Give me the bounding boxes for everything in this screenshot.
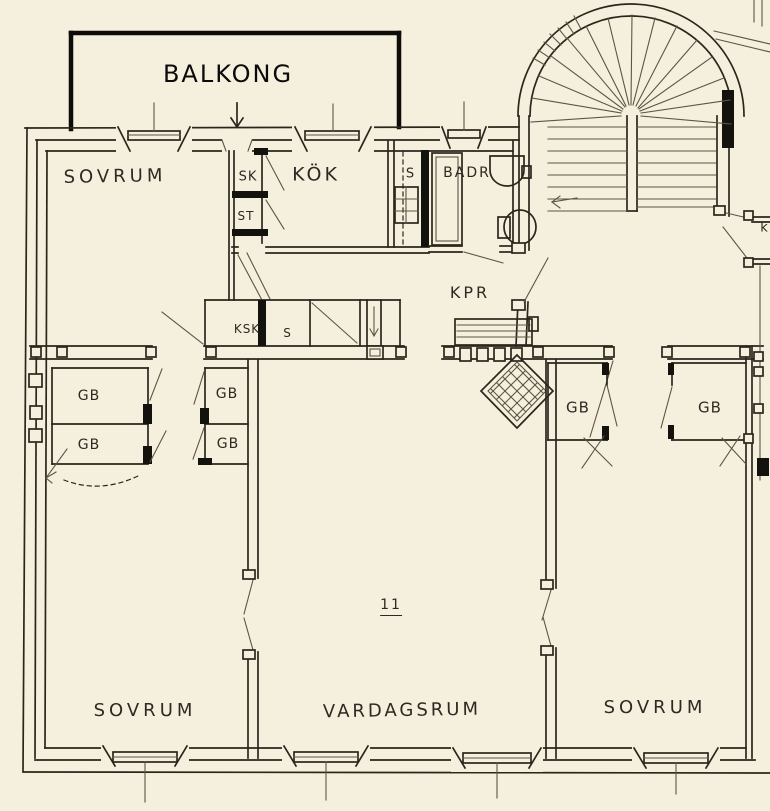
floor-plan-drawing (0, 0, 770, 811)
edge-partial-label: k (760, 222, 768, 235)
wardrobe-label-6: GB (698, 401, 722, 416)
closet-label-st: ST (238, 210, 255, 222)
window-top-bathroom (440, 102, 488, 149)
wardrobe-label-4: GB (217, 437, 239, 451)
room-label-living-room: VARDAGSRUM (323, 701, 481, 722)
wardrobe-label-2: GB (78, 438, 100, 452)
outer-walls (23, 127, 770, 773)
window-top-bedroom (116, 103, 192, 152)
closet-label-sk: SK (239, 171, 258, 184)
balcony-label: BALKONG (163, 62, 293, 86)
room-label-bedroom-bottom-left: SOVRUM (94, 702, 197, 720)
apartment-number: 11 (380, 598, 402, 616)
closet-label-ksk: KSK (234, 323, 260, 335)
hall-wall (30, 312, 763, 437)
entry-door (512, 243, 548, 310)
window-bottom-4 (632, 746, 720, 794)
room-label-bedroom-top-left: SOVRUM (63, 167, 166, 187)
window-bottom-3 (451, 746, 543, 798)
wardrobe-label-1: GB (78, 389, 100, 403)
wardrobe-label-5: GB (566, 401, 590, 416)
wardrobe-label-3: GB (216, 387, 238, 401)
room-label-bedroom-bottom-right: SOVRUM (604, 699, 707, 717)
closet-label-pantry: S (406, 168, 414, 181)
floor-plan: BALKONG SOVRUM SK ST KÖK S BADR KPR KSK … (0, 0, 770, 811)
closet-label-hall-s: S (283, 327, 291, 339)
wardrobe-left-pair (52, 368, 166, 486)
room-label-hall: KPR (450, 285, 490, 301)
balcony-door (222, 103, 252, 154)
staircase (516, 0, 770, 346)
window-top-kitchen (292, 104, 374, 152)
room-label-bathroom: BADR (443, 166, 491, 180)
toilet-icon (504, 210, 536, 244)
room-label-kitchen: KÖK (292, 166, 340, 185)
